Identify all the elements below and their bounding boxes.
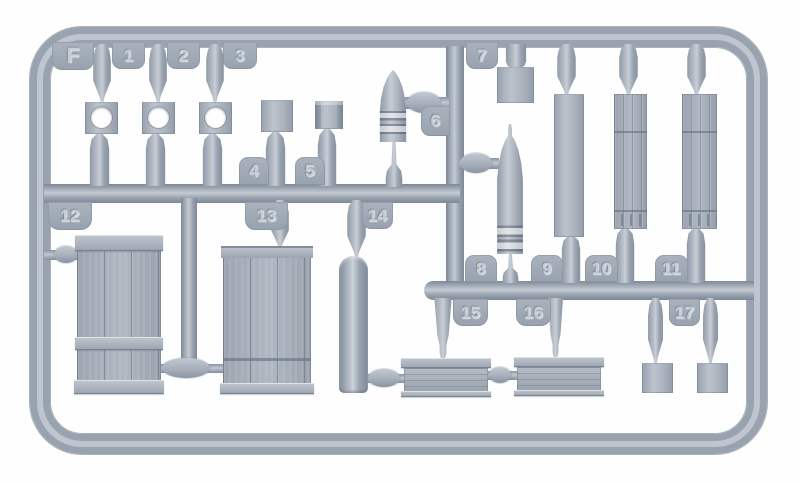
runner-horizontal-lower (424, 281, 754, 300)
part-16-base (514, 390, 604, 396)
part-10-wood-panel (614, 94, 647, 229)
tab-5: 5 (295, 157, 325, 185)
part-11-band (682, 210, 717, 212)
sprue-gate-bulge (162, 358, 210, 378)
part-15-lid (401, 358, 491, 368)
part-11-band (682, 131, 717, 133)
part-11-wood-panel (682, 94, 717, 229)
sprue-gate (145, 133, 166, 186)
part-12-band (75, 337, 163, 350)
sprue-gate (202, 133, 223, 186)
part-12-base (74, 380, 164, 394)
tab-12: 12 (48, 202, 92, 230)
part-13-crate (223, 246, 311, 394)
tab-14: 14 (362, 202, 393, 229)
part-15-ammo-box (401, 358, 491, 398)
part-15-body (404, 368, 488, 392)
tab-16: 16 (516, 299, 551, 326)
part-12-crate (77, 235, 161, 394)
tab-f: F (52, 42, 94, 70)
part-10-band (614, 131, 647, 133)
sprue-photo: F 1 2 3 4 5 6 7 8 9 10 11 12 13 14 15 16… (0, 0, 800, 483)
part-11-notches (682, 214, 717, 226)
tab-17: 17 (669, 299, 700, 326)
sprue-gate-bulge (368, 369, 400, 387)
sprue-gate (561, 235, 581, 283)
part-15-base (401, 391, 491, 397)
tab-13: 13 (245, 202, 288, 230)
tab-2: 2 (167, 42, 200, 69)
sprue-gate-bulge (489, 367, 511, 383)
part-13-band (223, 358, 311, 361)
tab-8: 8 (465, 255, 497, 282)
part-5-rail-right (337, 101, 343, 129)
part-1-hole (91, 107, 112, 128)
runner-vertical-mid (181, 198, 197, 364)
part-4-plate (261, 100, 293, 132)
part-10-band (614, 210, 647, 212)
part-3-hole (205, 107, 226, 128)
tab-1: 1 (112, 42, 145, 69)
sprue-gate (686, 227, 706, 283)
part-17-plate-b (697, 363, 728, 393)
part-17-plate-a (642, 363, 673, 393)
part-10-notches (614, 214, 647, 226)
part-1-plate-with-hole (85, 102, 118, 134)
tab-15: 15 (453, 299, 488, 326)
tab-10: 10 (585, 255, 618, 282)
sprue-gate (505, 44, 527, 69)
part-16-ammo-box (514, 357, 604, 397)
part-16-body (517, 367, 601, 391)
tab-9: 9 (531, 255, 563, 282)
part-2-plate-with-hole (142, 102, 175, 134)
part-5-bracket (315, 101, 343, 129)
part-7-box (497, 67, 534, 103)
part-5-rail-left (315, 101, 321, 129)
part-9-panel (554, 94, 584, 237)
sprue-gate (89, 133, 110, 186)
tab-6: 6 (421, 106, 450, 136)
part-2-hole (148, 107, 169, 128)
part-16-lid (514, 357, 604, 367)
part-5-top-edge (315, 101, 343, 105)
tab-4: 4 (239, 157, 269, 185)
sprue-gate (615, 227, 635, 283)
part-13-base (220, 383, 314, 394)
part-12-lid (75, 235, 163, 251)
part-14-cylinder (339, 256, 368, 393)
tab-11: 11 (655, 255, 688, 282)
part-13-lid (221, 246, 313, 258)
sprue-gate-bulge (460, 153, 492, 173)
tab-3: 3 (223, 42, 257, 69)
part-3-plate-with-hole (199, 102, 232, 134)
tab-7: 7 (466, 42, 498, 69)
